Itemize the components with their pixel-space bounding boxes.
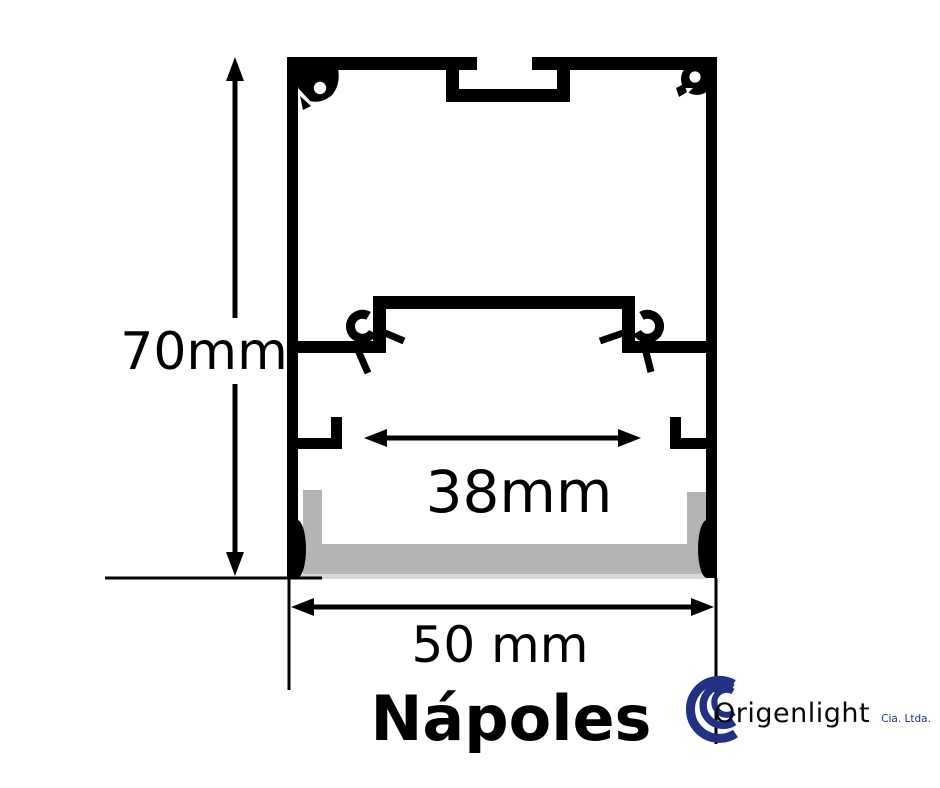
inner-width-dimension-arrow — [364, 429, 641, 447]
screw-boss-top-left-icon — [298, 68, 339, 110]
bracket-left-vertical — [331, 417, 342, 449]
diffuser-bottom — [303, 544, 706, 575]
foot-bulge-left — [288, 520, 306, 578]
svg-text:Origenlight Cia. Ltda.: Origenlight Cia. Ltda. — [714, 698, 931, 729]
height-dimension-arrow — [226, 57, 244, 576]
profile-cross-section-diagram: 70mm 38mm 50 mm Nápoles Origenlight Cia.… — [0, 0, 940, 788]
profile-title: Nápoles — [371, 682, 652, 755]
outer-width-label: 50 mm — [412, 616, 589, 674]
hat-channel-bottom — [446, 89, 570, 102]
diffuser-left-upright — [303, 490, 322, 550]
foot-bulge-right — [698, 520, 716, 578]
diffuser-bottom-edge — [300, 574, 706, 579]
wall-right — [706, 57, 717, 578]
bracket-right-vertical — [670, 417, 681, 449]
logo-wordmark: Origenlight — [714, 698, 870, 729]
inner-width-label: 38mm — [426, 458, 613, 526]
height-label: 70mm — [120, 322, 287, 382]
wall-left — [287, 57, 298, 578]
logo-company-suffix: Cia. Ltda. — [881, 713, 931, 725]
outer-width-dimension-arrow — [291, 598, 714, 616]
profile-drawing-page: 70mm 38mm 50 mm Nápoles Origenlight Cia.… — [0, 0, 940, 788]
platform-top — [373, 296, 635, 309]
origenlight-logo: Origenlight Cia. Ltda. — [690, 680, 930, 738]
